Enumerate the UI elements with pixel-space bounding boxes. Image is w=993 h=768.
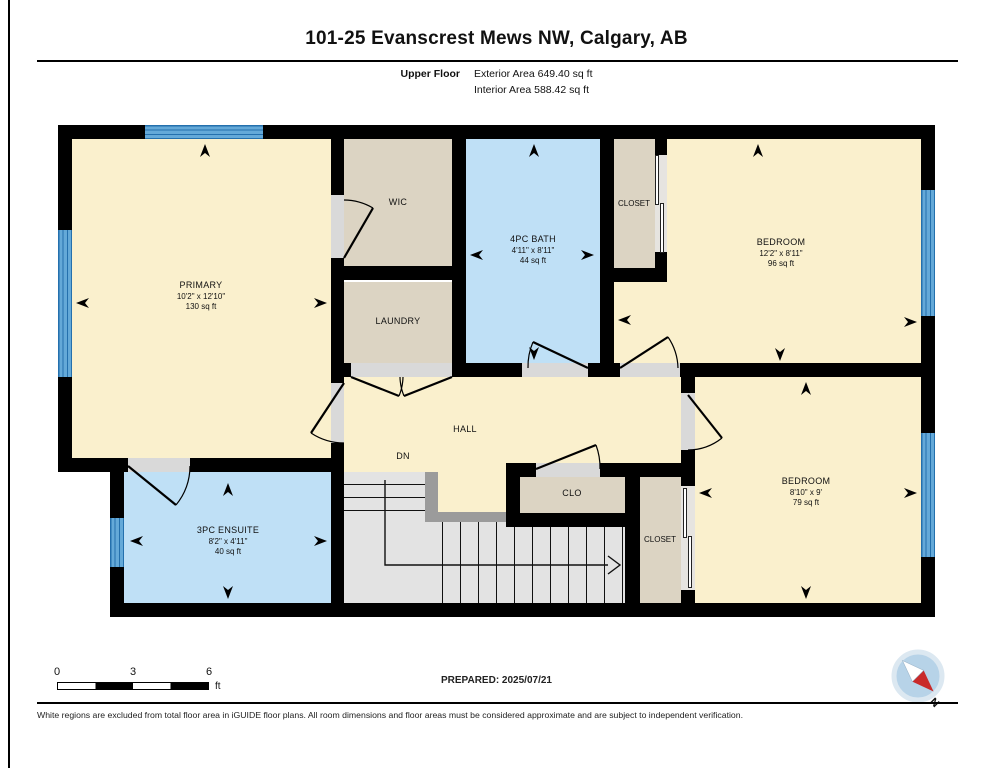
wall-segment [452,139,466,377]
wall-segment [466,363,522,377]
window [110,518,124,567]
wall-segment [681,450,695,486]
wall-segment [921,125,935,190]
footer-divider [37,702,958,704]
window [921,190,935,316]
wall-segment [506,513,640,527]
room-label-closet-bottom: CLOSET [644,535,676,545]
door-opening [536,463,600,477]
door-opening [331,195,344,258]
room-label-laundry: LAUNDRY [376,316,421,328]
wall-segment [655,139,667,155]
sliding-door [688,536,692,588]
wall-segment [600,268,667,282]
wall-segment [921,316,935,433]
door-opening [331,383,344,443]
room-label-ensuite: 3PC ENSUITE 8'2" x 4'11" 40 sq ft [197,525,259,557]
wall-segment [625,463,640,617]
wall-segment [600,463,681,477]
floor-areas: Exterior Area 649.40 sq ft Interior Area… [474,68,592,100]
floor-label: Upper Floor [401,68,461,100]
room-label-clo: CLO [562,488,581,500]
wall-segment [331,139,344,195]
wall-segment [600,139,614,377]
door-opening [620,363,680,377]
sliding-door [660,203,664,253]
sliding-door [683,488,687,538]
wall-segment [331,266,466,280]
door-opening [351,363,452,377]
header-divider [37,60,958,62]
window [58,230,72,377]
room-label-bedroom-bottom: BEDROOM 8'10" x 9' 79 sq ft [782,476,831,508]
room-label-wic: WIC [389,197,407,209]
window [921,433,935,557]
room-label-closet-top: CLOSET [618,199,650,209]
door-opening [681,393,695,450]
exterior-area: Exterior Area 649.40 sq ft [474,68,592,80]
wall-segment [681,590,695,603]
disclaimer-text: White regions are excluded from total fl… [37,710,957,720]
stairs-dn-label: DN [396,451,410,463]
room-label-hall: HALL [453,424,477,436]
room-fill-hall [344,377,681,472]
room-label-primary: PRIMARY 10'2" x 12'10" 130 sq ft [177,280,225,312]
floorplan-page: 101-25 Evanscrest Mews NW, Calgary, AB U… [0,0,993,768]
prepared-date: PREPARED: 2025/07/21 [0,675,993,686]
door-opening [128,458,190,472]
stair-landing [344,472,425,522]
wall-segment [680,363,921,377]
wall-segment [58,125,72,230]
wall-segment [331,363,351,377]
page-title: 101-25 Evanscrest Mews NW, Calgary, AB [0,28,993,50]
wall-segment [263,125,935,139]
stair-railing-vertical [425,472,438,512]
wall-segment [506,463,536,477]
page-edge-line [8,0,10,768]
room-label-bath: 4PC BATH 4'11" x 8'11" 44 sq ft [510,234,556,266]
wall-segment [655,252,667,268]
wall-segment [681,377,695,393]
wall-segment [452,363,466,377]
wall-segment [110,603,935,617]
floor-summary: Upper Floor Exterior Area 649.40 sq ft I… [0,68,993,100]
wall-segment [331,443,344,603]
room-label-bedroom-top: BEDROOM 12'2" x 8'11" 96 sq ft [757,237,806,269]
wall-segment [110,472,124,518]
interior-area: Interior Area 588.42 sq ft [474,84,592,96]
hall-pocket [438,472,506,512]
window [145,125,263,139]
wall-segment [58,458,128,472]
stair-railing-horizontal [425,512,506,522]
door-opening [522,363,588,377]
sliding-door [655,155,659,205]
stair-treads [425,522,625,603]
wall-segment [190,458,344,472]
